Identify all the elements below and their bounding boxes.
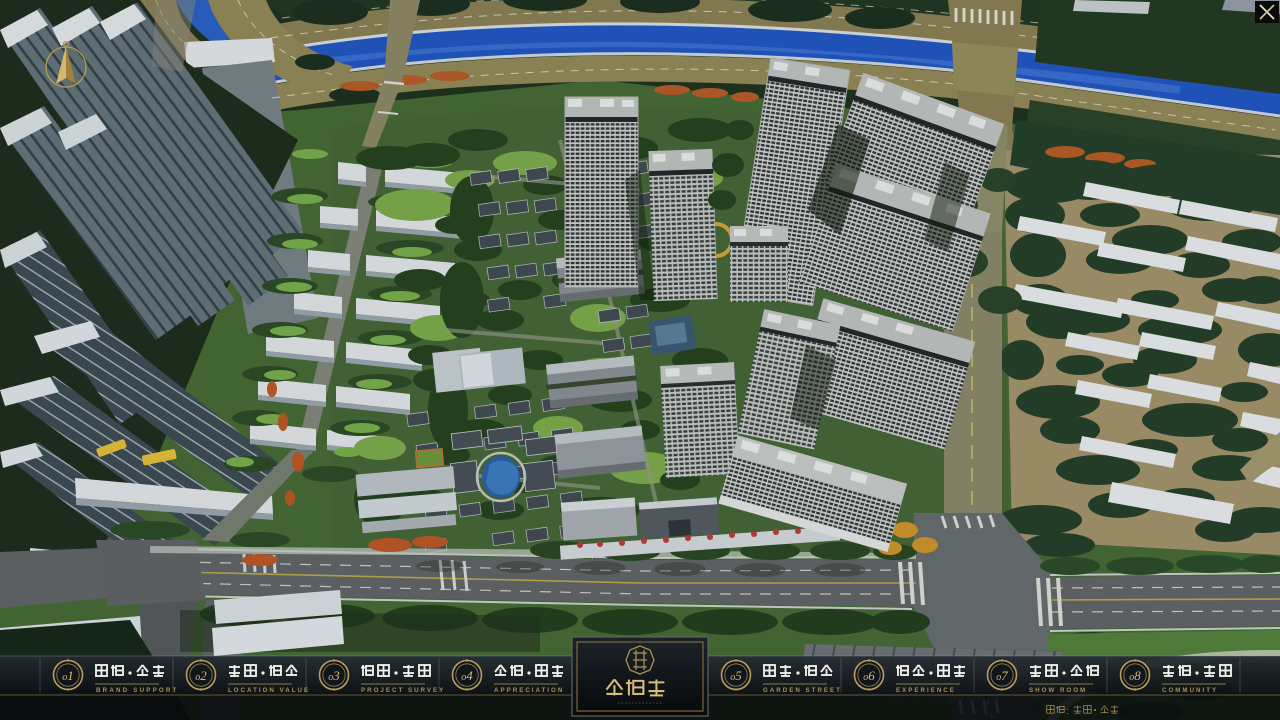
svg-text:EXPERIENCE: EXPERIENCE <box>896 687 956 694</box>
svg-text:SHOW ROOM: SHOW ROOM <box>1029 687 1087 694</box>
svg-text:GARDEN STREET: GARDEN STREET <box>763 687 842 694</box>
svg-text:APPRECIATION: APPRECIATION <box>494 687 564 694</box>
svg-text:BRAND SUPPORT: BRAND SUPPORT <box>96 687 179 694</box>
svg-text:LOCATION VALUE: LOCATION VALUE <box>228 687 310 694</box>
svg-text:PROJECT SURVEY: PROJECT SURVEY <box>361 687 445 694</box>
svg-text::: : <box>1066 706 1069 716</box>
svg-text:COMMUNITY: COMMUNITY <box>1162 687 1218 694</box>
